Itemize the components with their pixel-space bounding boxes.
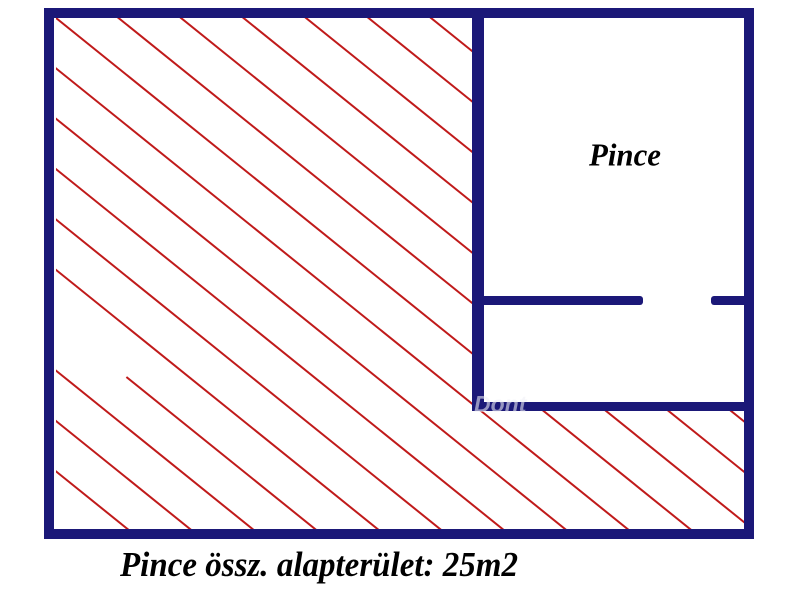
svg-text:Dont: Dont [474, 391, 528, 417]
svg-text:Pince: Pince [588, 137, 661, 173]
svg-text:Pince össz. alapterület: 25m2: Pince össz. alapterület: 25m2 [119, 545, 518, 584]
